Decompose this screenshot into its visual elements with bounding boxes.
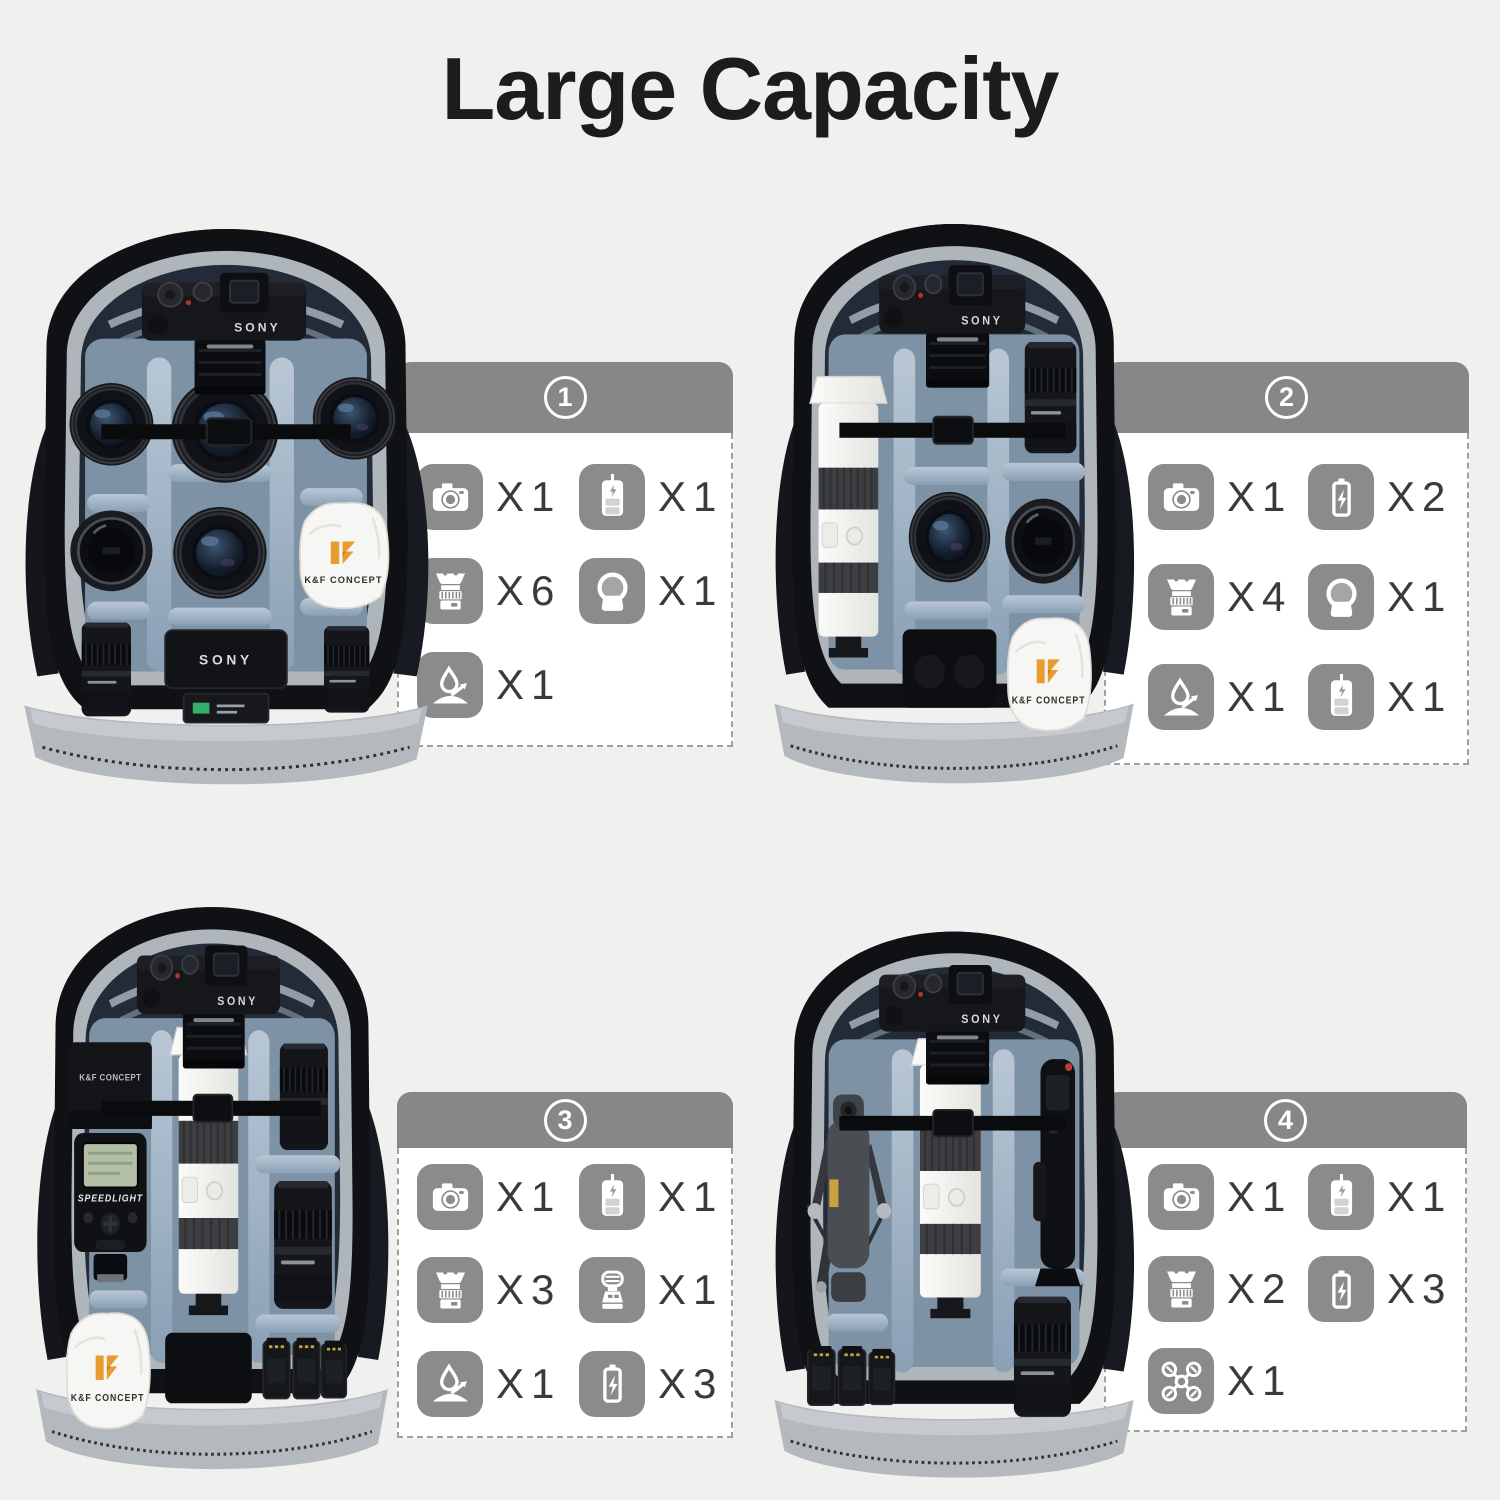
- gear-qty: X1: [1227, 1357, 1292, 1405]
- gear-qty: X1: [658, 567, 723, 615]
- battery-charger-icon: [579, 1164, 645, 1230]
- gear-item: X1: [1308, 1164, 1459, 1230]
- gear-list: X1X1X6X1X1: [397, 433, 733, 747]
- gear-qty: X2: [1387, 473, 1452, 521]
- stage: Large Capacity: [0, 0, 1500, 1500]
- gear-qty: X3: [496, 1266, 561, 1314]
- panel-badge: 3: [544, 1099, 587, 1142]
- backpack-photo-1: [8, 213, 444, 801]
- backpack-photo-2: [760, 208, 1148, 800]
- gear-item: X1: [1148, 664, 1308, 730]
- battery-charger-icon: [1308, 664, 1374, 730]
- gear-qty: X1: [1387, 673, 1452, 721]
- gear-qty: X1: [1227, 673, 1292, 721]
- gear-list: X1X1X3X1X1X3: [397, 1148, 733, 1438]
- gear-item: X1: [579, 1164, 725, 1230]
- gear-item: X3: [1308, 1256, 1459, 1322]
- gear-qty: X1: [496, 473, 561, 521]
- gear-list: X1X1X2X3X1: [1104, 1148, 1467, 1432]
- gear-item: X1: [1148, 1348, 1308, 1414]
- gear-qty: X1: [496, 1173, 561, 1221]
- gear-qty: X1: [1227, 1173, 1292, 1221]
- card-header: 4: [1104, 1092, 1467, 1148]
- gear-item: X1: [579, 464, 725, 530]
- gear-qty: X1: [658, 1173, 723, 1221]
- gear-item: X1: [417, 1351, 579, 1417]
- card-header: 1: [397, 362, 733, 433]
- flash-icon: [579, 1257, 645, 1323]
- capacity-card-1: 1 X1X1X6X1X1: [397, 362, 733, 747]
- gear-qty: X1: [1227, 473, 1292, 521]
- gear-item: X3: [579, 1351, 725, 1417]
- battery-icon: [579, 1351, 645, 1417]
- gear-item: X4: [1148, 564, 1308, 630]
- gear-item: X3: [417, 1257, 579, 1323]
- camera-icon: [1148, 464, 1214, 530]
- gear-item: X1: [579, 558, 725, 624]
- waterproof-icon: [1148, 664, 1214, 730]
- backpack-photo-4: [760, 916, 1148, 1494]
- waterproof-icon: [417, 1351, 483, 1417]
- gear-qty: X1: [658, 1266, 723, 1314]
- panel-badge: 1: [544, 376, 587, 419]
- gear-item: X1: [1308, 564, 1461, 630]
- drone-icon: [1148, 1348, 1214, 1414]
- filter-icon: [1308, 564, 1374, 630]
- backpack-photo-3: [22, 891, 402, 1486]
- gear-item: X1: [417, 1164, 579, 1230]
- gear-qty: X6: [496, 567, 561, 615]
- page-title: Large Capacity: [0, 38, 1500, 140]
- gear-item: X1: [1308, 664, 1461, 730]
- card-header: 3: [397, 1092, 733, 1148]
- battery-icon: [1308, 464, 1374, 530]
- camera-icon: [1148, 1164, 1214, 1230]
- lens-icon: [1148, 1256, 1214, 1322]
- card-header: 2: [1104, 362, 1469, 433]
- gear-item: X1: [1148, 464, 1308, 530]
- gear-qty: X1: [496, 661, 561, 709]
- filter-icon: [579, 558, 645, 624]
- camera-icon: [417, 1164, 483, 1230]
- gear-item: X1: [1148, 1164, 1308, 1230]
- battery-icon: [1308, 1256, 1374, 1322]
- gear-qty: X1: [1387, 1173, 1452, 1221]
- gear-item: X2: [1148, 1256, 1308, 1322]
- gear-qty: X1: [658, 473, 723, 521]
- capacity-card-3: 3 X1X1X3X1X1X3: [397, 1092, 733, 1438]
- gear-qty: X1: [1387, 573, 1452, 621]
- gear-item: X2: [1308, 464, 1461, 530]
- battery-charger-icon: [1308, 1164, 1374, 1230]
- gear-qty: X2: [1227, 1265, 1292, 1313]
- gear-qty: X3: [1387, 1265, 1452, 1313]
- gear-qty: X3: [658, 1360, 723, 1408]
- lens-icon: [417, 1257, 483, 1323]
- gear-qty: X4: [1227, 573, 1292, 621]
- battery-charger-icon: [579, 464, 645, 530]
- gear-list: X1X2X4X1X1X1: [1104, 433, 1469, 765]
- gear-qty: X1: [496, 1360, 561, 1408]
- gear-item: X1: [579, 1257, 725, 1323]
- capacity-card-2: 2 X1X2X4X1X1X1: [1104, 362, 1469, 765]
- panel-badge: 2: [1265, 376, 1308, 419]
- lens-icon: [1148, 564, 1214, 630]
- panel-badge: 4: [1264, 1099, 1307, 1142]
- capacity-card-4: 4 X1X1X2X3X1: [1104, 1092, 1467, 1432]
